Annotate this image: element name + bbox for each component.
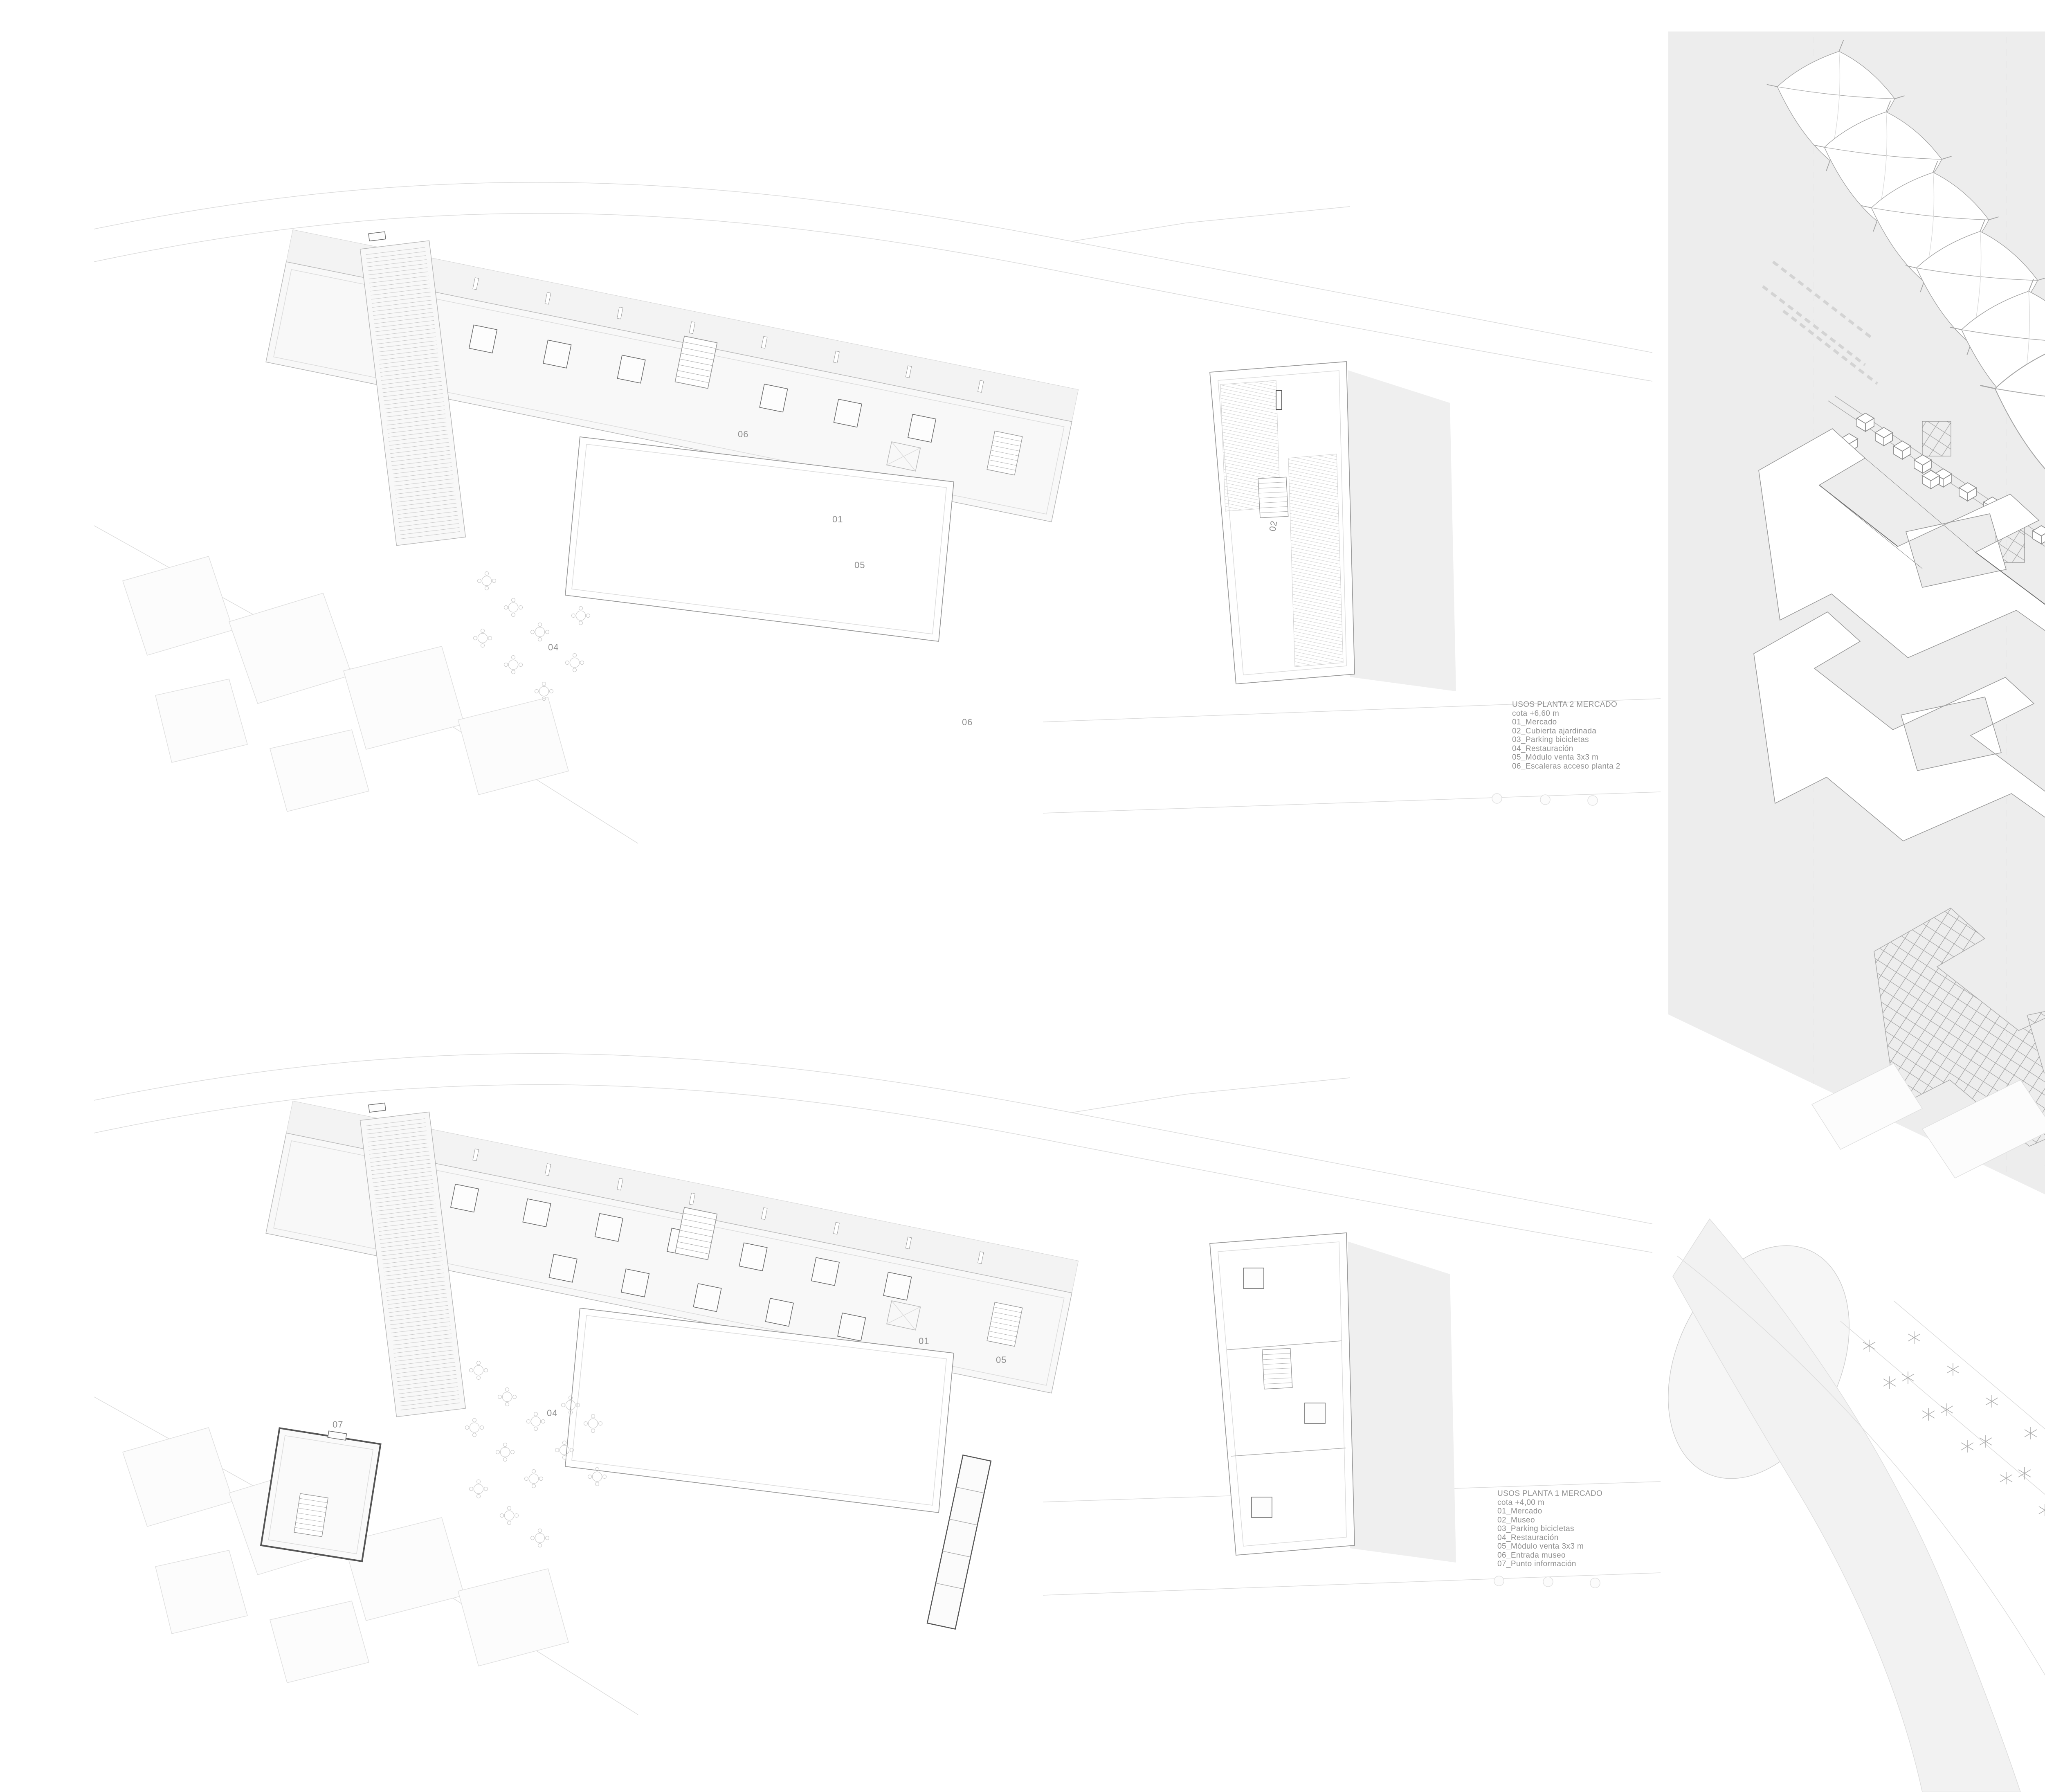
mark-05: 05 (996, 1355, 1007, 1365)
axon-panel (1633, 31, 2045, 1792)
legend-planta-1: USOS PLANTA 1 MERCADO cota +4,00 m 01_Me… (1497, 1489, 1602, 1569)
museum-plan-top (1210, 362, 1456, 691)
legend-item: 03_Parking bicicletas (1497, 1524, 1602, 1533)
legend-item: 01_Mercado (1512, 718, 1620, 727)
legend-item: 02_Museo (1497, 1516, 1602, 1525)
legend-item: 05_Módulo venta 3x3 m (1497, 1542, 1602, 1551)
board-artwork: 06 01 05 04 06 02 (0, 0, 2045, 1792)
mark-01: 01 (832, 514, 843, 524)
legend-cota: cota +6,60 m (1512, 709, 1620, 718)
legend-item: 02_Cubierta ajardinada (1512, 727, 1620, 736)
mark-05: 05 (854, 560, 865, 570)
info-point-room (261, 1423, 381, 1561)
legend-item: 01_Mercado (1497, 1507, 1602, 1516)
mark-01: 01 (919, 1336, 929, 1346)
plan-top: 06 01 05 04 06 02 (94, 182, 1661, 843)
plan-bottom: 04 01 05 07 (94, 1054, 1661, 1715)
mark-04: 04 (548, 642, 559, 652)
plan-top-context-parcels (123, 556, 569, 812)
legend-cota: cota +4,00 m (1497, 1498, 1602, 1507)
mark-04: 04 (547, 1408, 557, 1418)
legend-item: 06_Escaleras acceso planta 2 (1512, 762, 1620, 771)
legend-item: 05_Módulo venta 3x3 m (1512, 753, 1620, 762)
mark-06b: 06 (962, 717, 973, 727)
legend-item: 03_Parking bicicletas (1512, 735, 1620, 744)
mark-06: 06 (738, 429, 748, 439)
legend-title: USOS PLANTA 2 MERCADO (1512, 700, 1620, 709)
museum-plan-bottom (1210, 1233, 1456, 1563)
legend-item: 04_Restauración (1512, 744, 1620, 753)
mark-02: 02 (1267, 519, 1279, 532)
legend-title: USOS PLANTA 1 MERCADO (1497, 1489, 1602, 1498)
site-plan (1633, 1064, 2045, 1792)
mark-07: 07 (333, 1419, 343, 1430)
legend-planta-2: USOS PLANTA 2 MERCADO cota +6,60 m 01_Me… (1512, 700, 1620, 771)
legend-item: 04_Restauración (1497, 1533, 1602, 1542)
legend-item: 06_Entrada museo (1497, 1551, 1602, 1560)
presentation-board: 06 01 05 04 06 02 (0, 0, 2045, 1792)
legend-item: 07_Punto información (1497, 1560, 1602, 1569)
